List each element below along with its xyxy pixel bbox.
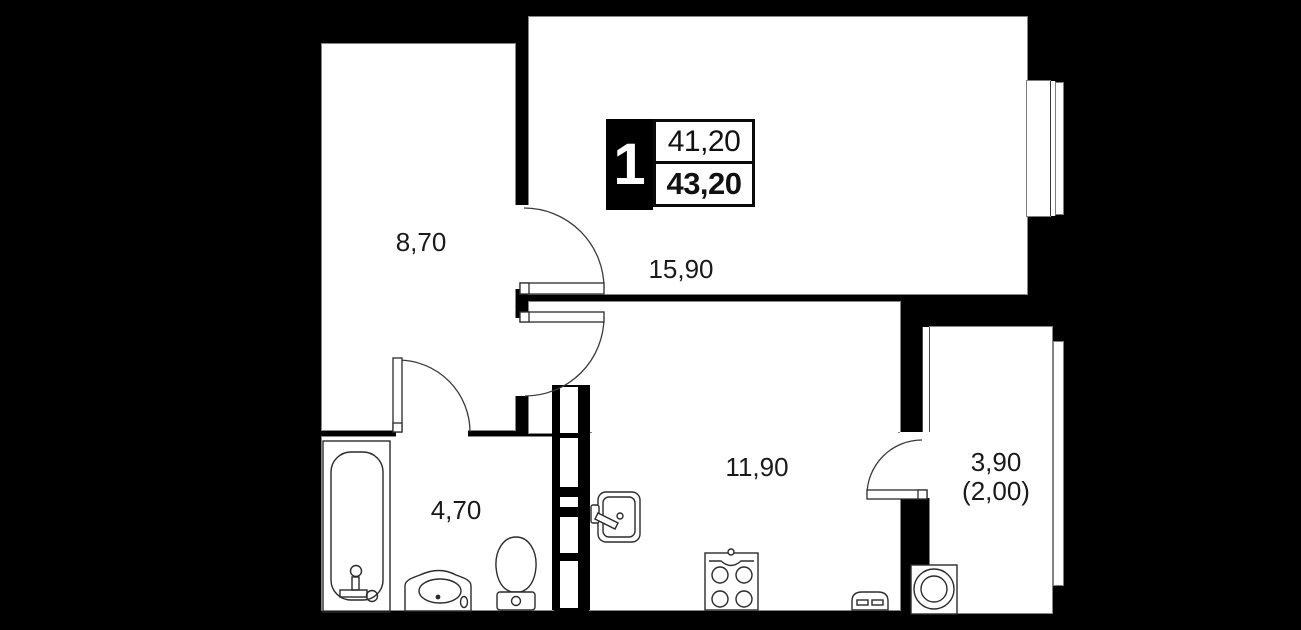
- shaft-cell: [560, 497, 578, 507]
- room-area-label-hallway: 8,70: [361, 228, 481, 256]
- unit-area-living: 41,20: [653, 119, 755, 164]
- unit-area-total: 43,20: [653, 161, 755, 207]
- room-area-label-kitchen: 11,90: [697, 453, 817, 481]
- door-opening-balcony: [900, 432, 932, 498]
- window-living-room-sill: [1056, 83, 1063, 214]
- shaft-cell: [560, 517, 578, 553]
- kitchen-join-patch: [592, 430, 898, 437]
- room-living: [529, 17, 1027, 294]
- shaft-cell: [560, 387, 578, 433]
- balcony-glazing-partition: [922, 327, 930, 432]
- room-area-label-balcony: 3,90: [936, 448, 1056, 476]
- unit-areas: 41,20 43,20: [653, 119, 755, 210]
- room-area-label-bathroom: 4,70: [396, 496, 516, 524]
- room-area-label-living: 15,90: [621, 255, 741, 283]
- ventilation-shaft: [552, 385, 590, 610]
- shaft-cell: [560, 438, 578, 487]
- floor-plan: 1 41,20 43,20 8,70 15,90 11,90 4,70 3,90…: [0, 0, 1301, 630]
- room-area-label-balcony-reduced: (2,00): [936, 477, 1056, 505]
- shaft-cell: [560, 561, 578, 608]
- unit-rooms-count: 1: [606, 119, 653, 210]
- door-opening-bathroom: [396, 428, 468, 439]
- door-opening-hallway-living: [515, 205, 529, 289]
- unit-info-badge: 1 41,20 43,20: [606, 119, 755, 210]
- window-living-room: [1027, 81, 1050, 216]
- door-opening-hallway-kitchen: [515, 318, 529, 396]
